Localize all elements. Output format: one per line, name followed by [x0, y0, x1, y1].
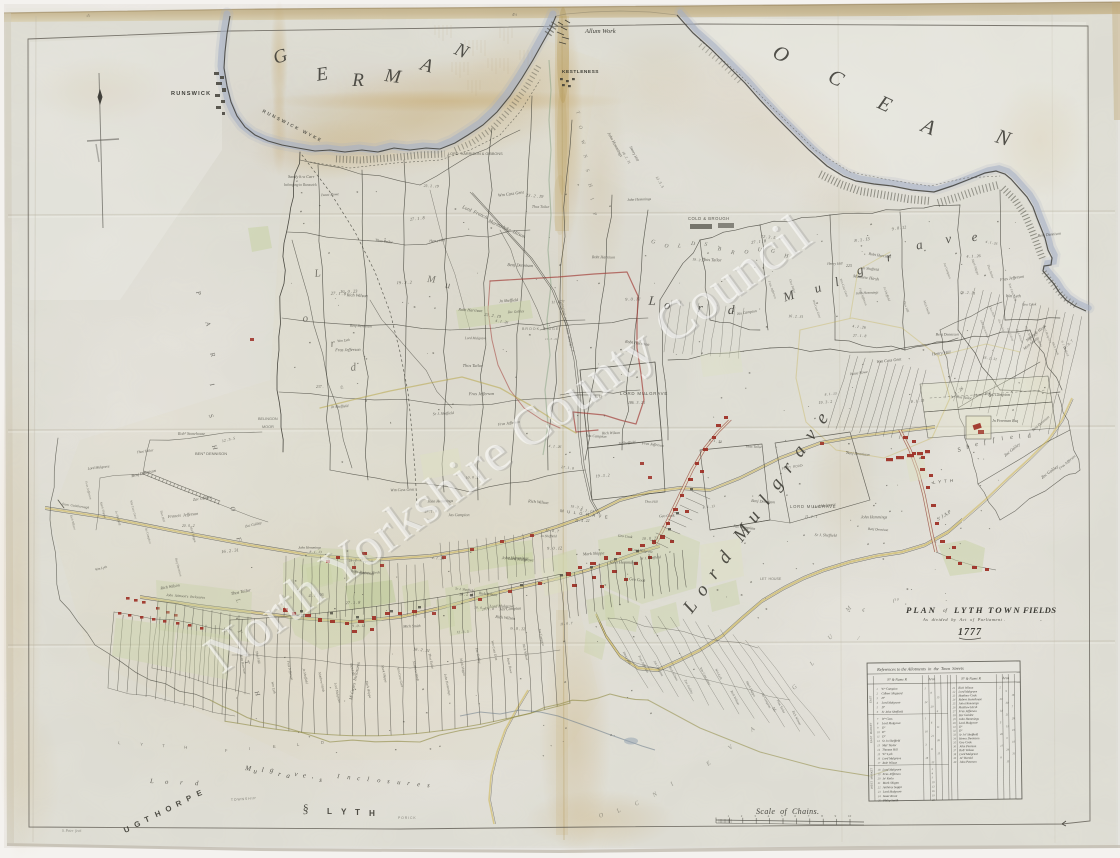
svg-text:11 . 1 . 1: 11 . 1 . 1 [805, 515, 818, 519]
svg-text:E: E [273, 744, 276, 749]
svg-text:Jn Freeman Esq: Jn Freeman Esq [992, 418, 1018, 423]
svg-text:COLD & BROUGH: COLD & BROUGH [688, 216, 730, 221]
svg-text:Jas Campion: Jas Campion [988, 392, 1010, 397]
svg-text:LORD HARRISON & GIBBONS: LORD HARRISON & GIBBONS [448, 152, 503, 156]
svg-text:LET HOUSE: LET HOUSE [760, 577, 782, 581]
svg-text:M: M [426, 274, 437, 286]
svg-text:L: L [149, 778, 154, 785]
svg-text:u: u [445, 280, 451, 291]
svg-text:LYTH: LYTH [953, 605, 985, 615]
svg-text:D: D [690, 241, 696, 248]
svg-text:Robᵀ Stonehouse: Robᵀ Stonehouse [177, 431, 205, 436]
svg-text:11 . 0 . 7: 11 . 0 . 7 [551, 300, 565, 304]
svg-text:Geo Cook: Geo Cook [1022, 302, 1037, 306]
svg-text:Sr John Sheffield: Sr John Sheffield [882, 710, 904, 714]
svg-text:Lord Mulgrave: Lord Mulgrave [881, 721, 901, 725]
svg-text:EAST MARKET: EAST MARKET [869, 722, 873, 743]
svg-text:Wᵐ Campion: Wᵐ Campion [881, 687, 897, 691]
svg-text:of: of [943, 609, 948, 614]
svg-text:Thos Hill: Thos Hill [645, 500, 658, 504]
svg-text:Robt Harrison: Robt Harrison [591, 254, 615, 259]
svg-text:¢: ¢ [862, 608, 865, 614]
svg-text:Thos Tailor: Thos Tailor [532, 205, 550, 209]
svg-text:4½: 4½ [512, 12, 517, 17]
svg-text:PLAN: PLAN [906, 605, 937, 615]
svg-text:27 . 1 . 8: 27 . 1 . 8 [482, 607, 494, 612]
svg-text:Geo Cook: Geo Cook [659, 514, 675, 519]
svg-text:Lord Mulgrave: Lord Mulgrave [464, 336, 487, 340]
svg-text:225: 225 [846, 263, 852, 268]
svg-text:27 . 1 . 8: 27 . 1 . 8 [853, 334, 867, 339]
svg-text:Henry Hill: Henry Hill [826, 262, 842, 266]
svg-text:186 . 3 . 21: 186 . 3 . 21 [628, 401, 645, 405]
svg-text:BELINGON: BELINGON [258, 417, 278, 421]
svg-text:10 . 0 . 23: 10 . 0 . 23 [642, 535, 658, 541]
svg-text:Mich Smith: Mich Smith [402, 624, 421, 629]
svg-text:Scale of Chains.: Scale of Chains. [756, 807, 819, 816]
svg-text:BENᵀ DENNISON: BENᵀ DENNISON [195, 451, 227, 456]
svg-text:Benj Dennison: Benj Dennison [936, 332, 959, 337]
svg-text:Fras Jefferson: Fras Jefferson [468, 391, 494, 396]
svg-text:T: T [355, 808, 360, 817]
svg-text:Sr J. Sheffield: Sr J. Sheffield [815, 532, 837, 538]
svg-text:BOSNHON MOOR: BOSNHON MOOR [580, 435, 613, 439]
svg-text:Fras Jefferson: Fras Jefferson [334, 347, 360, 352]
svg-text:Allum Work: Allum Work [584, 28, 616, 35]
svg-text:B R O O K R I D G E: B R O O K R I D G E [522, 327, 559, 331]
svg-text:EAST: EAST [868, 695, 872, 703]
svg-text:Gilbert Shippard: Gilbert Shippard [881, 691, 902, 695]
svg-text:Jn Sheffield: Jn Sheffield [540, 534, 557, 538]
svg-text:D: D [321, 740, 324, 745]
svg-text:Sandy h.w Carr: Sandy h.w Carr [288, 174, 315, 179]
svg-text:9 . 0 . 12: 9 . 0 . 12 [510, 626, 526, 631]
svg-text:John Hemmings: John Hemmings [609, 560, 638, 565]
svg-text:12 . 3 . 5: 12 . 3 . 5 [457, 630, 470, 635]
svg-text:11 . 3 . 21: 11 . 3 . 21 [545, 337, 558, 341]
svg-text:Thos Tailor: Thos Tailor [745, 444, 762, 449]
svg-text:H: H [369, 809, 375, 818]
svg-text:Philip Smith: Philip Smith [882, 798, 899, 802]
svg-text:LORD MULGRAVE: LORD MULGRAVE [790, 504, 836, 509]
svg-text:27 . 1 . 8: 27 . 1 . 8 [346, 600, 362, 606]
svg-text:John Hemmings: John Hemmings [861, 514, 888, 519]
svg-text:9 . 0 . 12: 9 . 0 . 12 [352, 624, 365, 628]
svg-text:Y: Y [341, 808, 347, 817]
svg-text:WEST MARKET: WEST MARKET [870, 767, 874, 789]
svg-text:R: R [351, 70, 364, 91]
svg-text:Area: Area [927, 677, 935, 681]
svg-text:MOOR: MOOR [262, 425, 274, 429]
svg-text:RUNSWICK: RUNSWICK [171, 91, 211, 97]
svg-text:Jas Campion: Jas Campion [499, 606, 521, 612]
svg-text:KESTLENESS: KESTLENESS [562, 69, 599, 75]
svg-text:S. Peter fecit: S. Peter fecit [62, 829, 82, 833]
svg-text:19 . 3 . 2: 19 . 3 . 2 [397, 280, 413, 286]
svg-text:9 . 0 . 12: 9 . 0 . 12 [625, 296, 641, 302]
svg-text:FIELDS: FIELDS [1022, 605, 1056, 615]
svg-text:L: L [327, 807, 332, 816]
svg-text:belonging to Runswick: belonging to Runswick [284, 183, 317, 187]
svg-text:TOWN: TOWN [988, 605, 1022, 615]
svg-text:21 . 4 . 22: 21 . 4 . 22 [575, 519, 590, 523]
svg-text:Nº & Name R: Nº & Name R [960, 676, 981, 680]
svg-text:10: 10 [848, 814, 852, 818]
svg-text:1777: 1777 [958, 627, 982, 638]
svg-text:P O R I C K: P O R I C K [398, 816, 416, 820]
svg-text:As divided by Act of Parl: As divided by Act of Parliament . [922, 617, 1006, 622]
svg-text:19 . 3 . 2: 19 . 3 . 2 [595, 472, 609, 478]
svg-text:237 .: 237 . [316, 385, 324, 389]
svg-text:Lord Mulgrave: Lord Mulgrave [881, 700, 901, 704]
svg-text:20 . 0 . 2: 20 . 0 . 2 [182, 524, 195, 528]
svg-text:Nº & Name R: Nº & Name R [886, 678, 907, 682]
svg-text:9 . 0 . 12: 9 . 0 . 12 [547, 545, 563, 551]
svg-text:Thos Tailor: Thos Tailor [463, 363, 483, 368]
svg-text:23 . 2 . 19: 23 . 2 . 19 [424, 184, 439, 189]
svg-text:Robᵗ Wilson: Robᵗ Wilson [881, 761, 897, 765]
svg-text:John Pearson: John Pearson [959, 760, 977, 764]
svg-text:16 . 2 . 31: 16 . 2 . 31 [788, 314, 803, 319]
